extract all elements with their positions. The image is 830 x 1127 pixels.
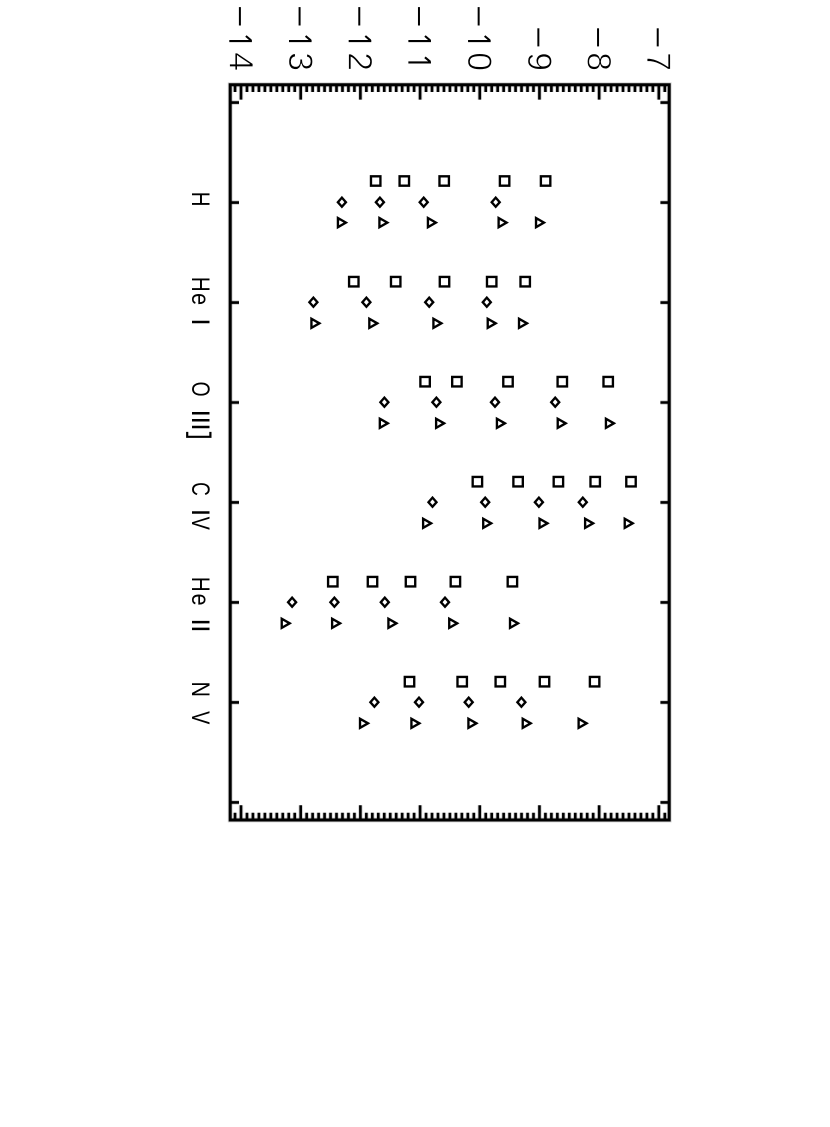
svg-text:I: I bbox=[186, 423, 215, 431]
svg-text:I: I bbox=[186, 625, 215, 633]
svg-text:8: 8 bbox=[579, 52, 617, 71]
svg-text:7: 7 bbox=[639, 52, 677, 71]
svg-text:e: e bbox=[187, 594, 215, 606]
svg-text:3: 3 bbox=[281, 52, 319, 71]
svg-text:C: C bbox=[186, 482, 214, 496]
svg-text:9: 9 bbox=[520, 52, 558, 71]
svg-text:4: 4 bbox=[221, 52, 259, 71]
svg-text:0: 0 bbox=[460, 52, 498, 71]
svg-text:H: H bbox=[187, 277, 215, 292]
svg-text:I: I bbox=[186, 318, 215, 326]
svg-text:V: V bbox=[186, 711, 214, 724]
svg-text:H: H bbox=[187, 577, 215, 592]
svg-text:O: O bbox=[186, 382, 214, 397]
svg-text:V: V bbox=[186, 517, 214, 530]
svg-text:I: I bbox=[186, 509, 215, 517]
svg-text:H: H bbox=[187, 192, 215, 207]
svg-text:2: 2 bbox=[341, 52, 379, 71]
svg-text:e: e bbox=[187, 293, 215, 305]
svg-text:N: N bbox=[187, 681, 215, 697]
